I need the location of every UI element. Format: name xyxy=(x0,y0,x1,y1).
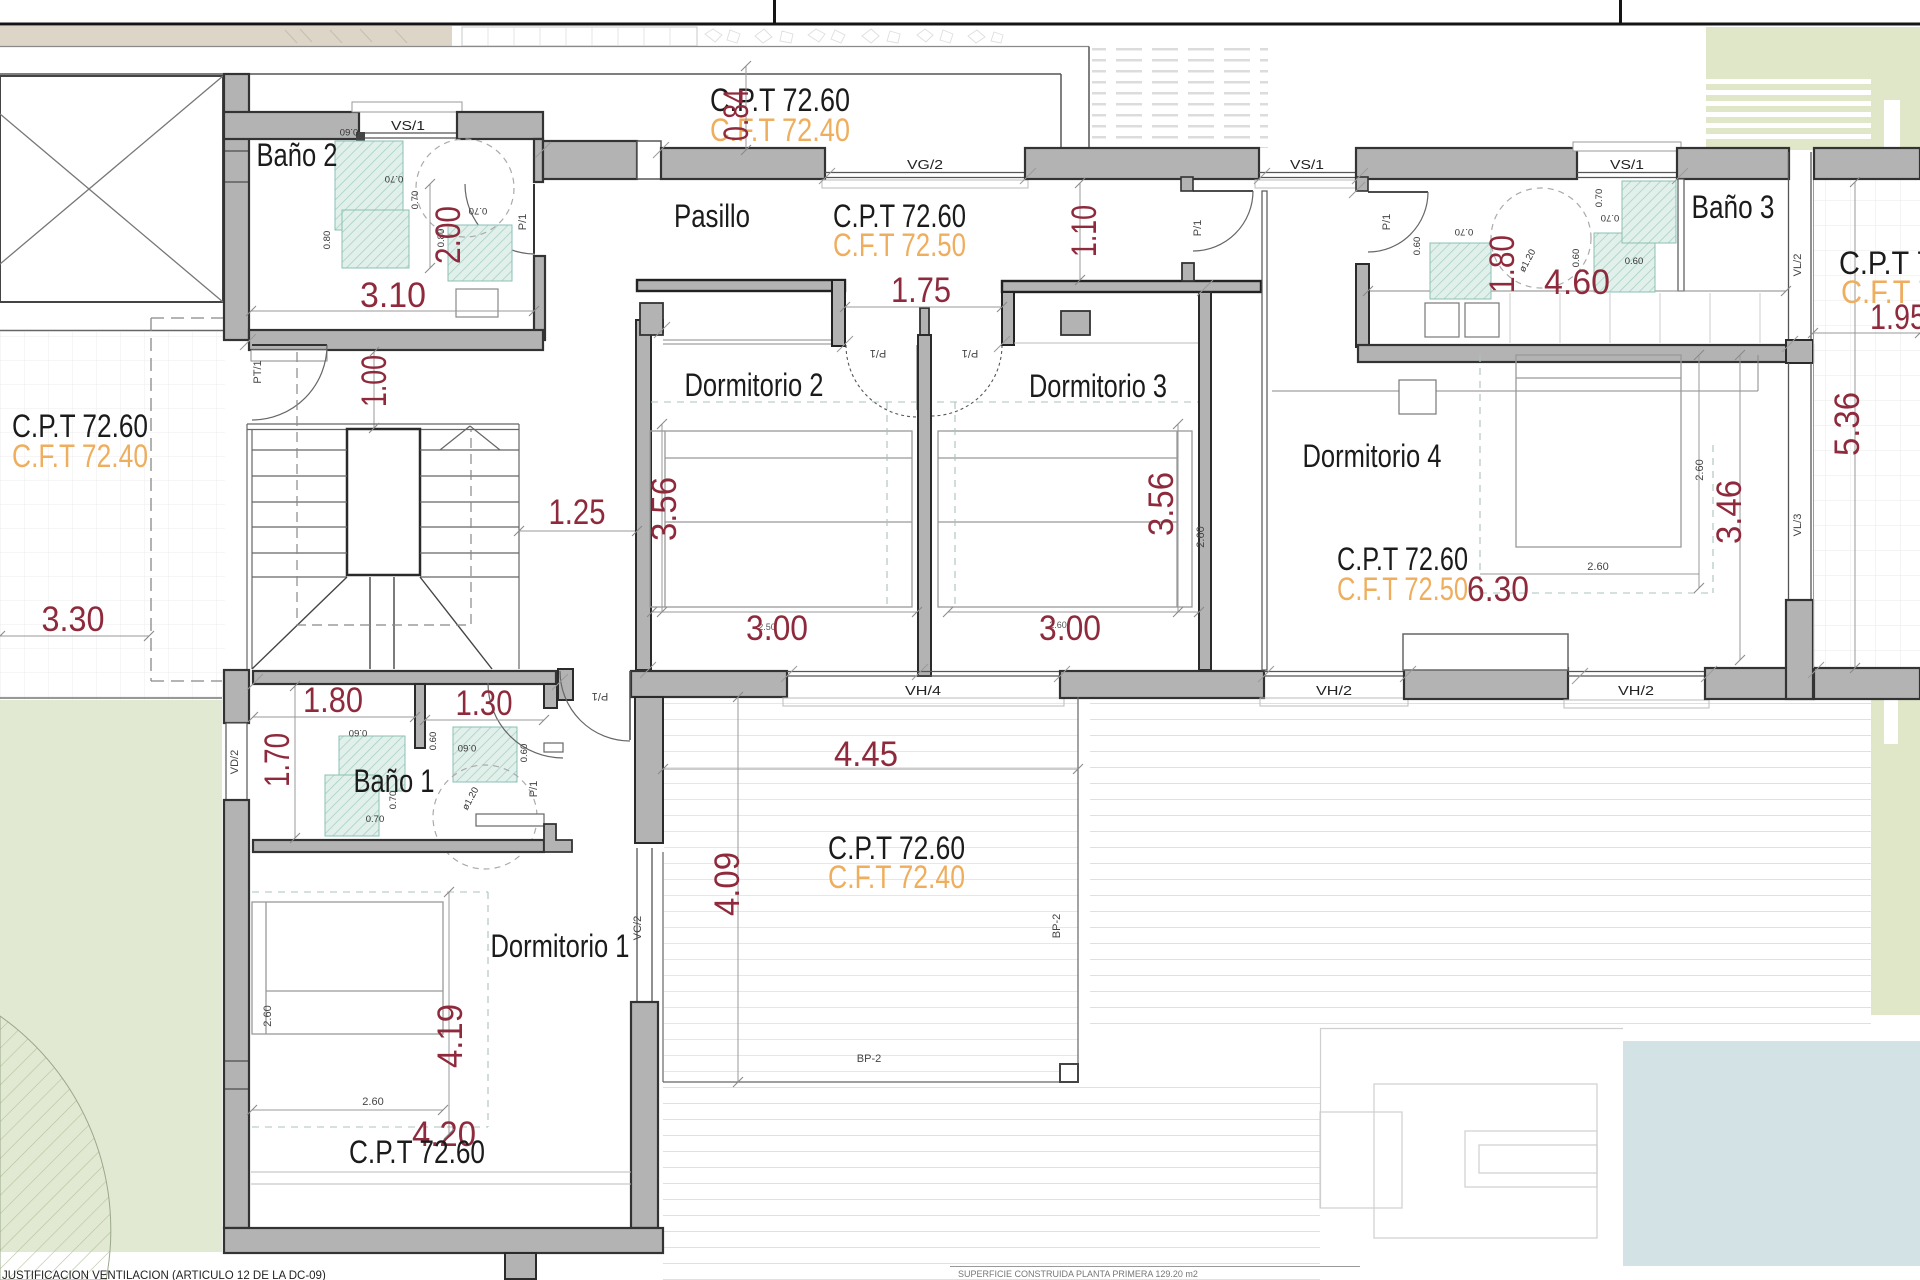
svg-text:1.80: 1.80 xyxy=(1483,235,1522,293)
svg-text:C.F.T 72.40: C.F.T 72.40 xyxy=(12,438,148,474)
svg-text:6.30: 6.30 xyxy=(1467,570,1529,609)
svg-text:3.00: 3.00 xyxy=(746,609,808,648)
svg-text:1.10: 1.10 xyxy=(1065,205,1104,257)
svg-text:0.70: 0.70 xyxy=(1594,189,1605,208)
svg-text:BP-2: BP-2 xyxy=(1051,914,1063,938)
svg-text:1.00: 1.00 xyxy=(355,355,394,407)
svg-text:0.60: 0.60 xyxy=(1625,256,1644,267)
svg-text:0.70: 0.70 xyxy=(410,191,421,210)
svg-text:5.36: 5.36 xyxy=(1828,392,1867,456)
svg-text:VS/1: VS/1 xyxy=(1610,157,1644,172)
svg-text:2.60: 2.60 xyxy=(362,1096,383,1108)
svg-text:0.70: 0.70 xyxy=(366,814,385,825)
svg-text:0.70: 0.70 xyxy=(385,173,404,184)
svg-text:0.60: 0.60 xyxy=(519,744,530,763)
svg-text:VL/2: VL/2 xyxy=(1792,254,1804,277)
svg-text:JUSTIFICACION VENTILACION (ART: JUSTIFICACION VENTILACION (ARTICULO 12 D… xyxy=(2,1270,326,1280)
svg-text:VH/2: VH/2 xyxy=(1316,683,1352,698)
svg-text:C.F.T 72.50: C.F.T 72.50 xyxy=(1337,571,1468,607)
svg-text:1.30: 1.30 xyxy=(456,684,513,723)
svg-text:3.46: 3.46 xyxy=(1710,480,1749,544)
svg-text:VH/2: VH/2 xyxy=(1618,683,1654,698)
svg-text:1.25: 1.25 xyxy=(549,493,606,532)
svg-text:2.60: 2.60 xyxy=(262,1005,274,1026)
svg-text:BP-2: BP-2 xyxy=(857,1053,881,1065)
svg-text:VH/4: VH/4 xyxy=(905,683,941,698)
svg-text:Pasillo: Pasillo xyxy=(674,198,750,234)
svg-text:VG/2: VG/2 xyxy=(907,157,943,172)
svg-text:C.F.T 72.40: C.F.T 72.40 xyxy=(828,859,965,895)
svg-text:Baño 2: Baño 2 xyxy=(257,137,338,173)
svg-text:P/1: P/1 xyxy=(592,690,609,702)
svg-text:3.10: 3.10 xyxy=(360,276,426,315)
svg-text:Dormitorio 3: Dormitorio 3 xyxy=(1029,368,1167,404)
svg-text:0.84: 0.84 xyxy=(717,89,756,141)
svg-text:Baño 1: Baño 1 xyxy=(354,763,435,799)
svg-text:PT/1: PT/1 xyxy=(252,360,264,383)
svg-text:VS/1: VS/1 xyxy=(391,118,425,133)
svg-text:0.60: 0.60 xyxy=(458,742,477,753)
svg-text:4.60: 4.60 xyxy=(1544,263,1610,302)
svg-text:0.60: 0.60 xyxy=(428,732,439,751)
svg-text:2.60: 2.60 xyxy=(1587,561,1608,573)
svg-text:3.30: 3.30 xyxy=(42,600,105,639)
svg-text:1.80: 1.80 xyxy=(303,681,363,720)
svg-text:P/1: P/1 xyxy=(1381,214,1393,231)
svg-text:C.P.T 72.60: C.P.T 72.60 xyxy=(349,1134,485,1170)
svg-text:3.00: 3.00 xyxy=(1039,609,1101,648)
svg-text:3.56: 3.56 xyxy=(1142,472,1181,536)
svg-text:VC/2: VC/2 xyxy=(632,916,644,940)
svg-text:C.F.T 72.50: C.F.T 72.50 xyxy=(1841,274,1920,310)
svg-text:Dormitorio 2: Dormitorio 2 xyxy=(685,367,824,403)
svg-text:Dormitorio 1: Dormitorio 1 xyxy=(491,928,630,964)
svg-text:4.19: 4.19 xyxy=(431,1004,470,1068)
svg-text:VD/2: VD/2 xyxy=(229,750,241,774)
svg-text:1.75: 1.75 xyxy=(891,271,951,310)
svg-text:P/1: P/1 xyxy=(528,781,540,798)
svg-text:2.60: 2.60 xyxy=(1195,526,1207,547)
svg-text:1.70: 1.70 xyxy=(258,733,297,787)
svg-text:P/1: P/1 xyxy=(1192,220,1204,237)
svg-text:0.70: 0.70 xyxy=(469,205,488,216)
svg-text:2.60: 2.60 xyxy=(1694,459,1706,480)
svg-text:0.60: 0.60 xyxy=(1412,237,1423,256)
svg-text:4.09: 4.09 xyxy=(708,852,747,916)
svg-text:0.60: 0.60 xyxy=(349,727,368,738)
svg-text:0.70: 0.70 xyxy=(1601,212,1620,223)
svg-text:2.00: 2.00 xyxy=(429,206,468,264)
svg-text:0.70: 0.70 xyxy=(1455,226,1474,237)
svg-text:0.80: 0.80 xyxy=(322,231,333,250)
svg-text:VL/3: VL/3 xyxy=(1792,514,1804,537)
svg-text:Dormitorio 4: Dormitorio 4 xyxy=(1303,438,1442,474)
svg-text:0.60: 0.60 xyxy=(340,126,359,137)
svg-text:C.F.T 72.50: C.F.T 72.50 xyxy=(833,227,966,263)
svg-text:P/1: P/1 xyxy=(870,347,887,359)
svg-text:Baño 3: Baño 3 xyxy=(1692,189,1775,225)
svg-text:SUPERFICIE CONSTRUIDA PLANTA P: SUPERFICIE CONSTRUIDA PLANTA PRIMERA 129… xyxy=(958,1269,1198,1279)
svg-text:P/1: P/1 xyxy=(962,347,979,359)
svg-text:4.45: 4.45 xyxy=(834,735,898,774)
svg-text:VS/1: VS/1 xyxy=(1290,157,1324,172)
svg-text:3.56: 3.56 xyxy=(645,477,684,541)
svg-text:P/1: P/1 xyxy=(517,214,529,231)
